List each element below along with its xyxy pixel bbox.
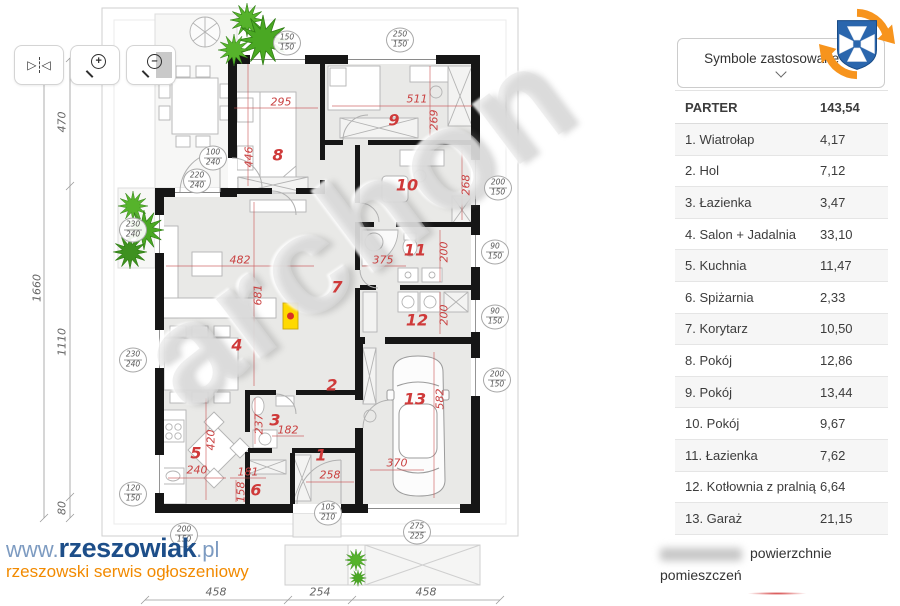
table-header-name: PARTER: [685, 100, 737, 115]
table-row: 5. Kuchnia11,47: [675, 250, 888, 282]
site-watermark-brand: www.rzeszowiak.pl rzeszowski serwis ogło…: [6, 534, 249, 581]
table-row: 4. Salon + Jadalnia33,10: [675, 219, 888, 251]
zoom-out-button[interactable]: –: [126, 45, 176, 85]
table-row: 10. Pokój9,67: [675, 408, 888, 440]
footer-note-line2: pomieszczeń: [660, 567, 742, 583]
entry-step: [293, 513, 341, 537]
zoom-in-button[interactable]: +: [70, 45, 120, 85]
brand-name: rzeszowiak: [59, 533, 197, 563]
redacted-text: [660, 548, 742, 561]
table-row: 12. Kotłownia z pralnią6,64: [675, 472, 888, 504]
brand-suffix: .pl: [196, 537, 219, 562]
chevron-down-icon: [775, 66, 786, 77]
plan: [102, 3, 518, 586]
table-row: 2. Hol7,12: [675, 156, 888, 188]
car: [387, 356, 449, 496]
zoom-out-icon: –: [139, 53, 163, 77]
table-row: 9. Pokój13,44: [675, 377, 888, 409]
table-header-value: 143,54: [820, 100, 878, 115]
table-row: 13. Garaż21,15: [675, 503, 888, 535]
table-row: 7. Korytarz10,50: [675, 314, 888, 346]
brand-tagline: rzeszowski serwis ogłoszeniowy: [6, 563, 249, 581]
room-area-table: PARTER 143,54 1. Wiatrołap4,17 2. Hol7,1…: [675, 90, 888, 535]
table-header-row: PARTER 143,54: [675, 90, 888, 124]
table-row: 8. Pokój12,86: [675, 345, 888, 377]
site-logo: [818, 4, 896, 84]
table-row: 1. Wiatrołap4,17: [675, 124, 888, 156]
flip-horizontal-icon: ▷◁: [27, 57, 50, 73]
zoom-in-icon: +: [83, 53, 107, 77]
table-row: 6. Spiżarnia2,33: [675, 282, 888, 314]
brand-prefix: www.: [6, 537, 59, 562]
table-row: 3. Łazienka3,47: [675, 187, 888, 219]
page: archon 1 2 3 4 5 6 7 8 9 10 11 12 13 295…: [0, 0, 900, 606]
table-row: 11. Łazienka7,62: [675, 440, 888, 472]
driveway: [285, 545, 480, 585]
red-fade-line: [748, 592, 806, 595]
footer-note-line1: powierzchnie: [750, 545, 832, 561]
footer-note: powierzchnie pomieszczeń: [660, 543, 895, 586]
flip-horizontal-button[interactable]: ▷◁: [14, 45, 64, 85]
